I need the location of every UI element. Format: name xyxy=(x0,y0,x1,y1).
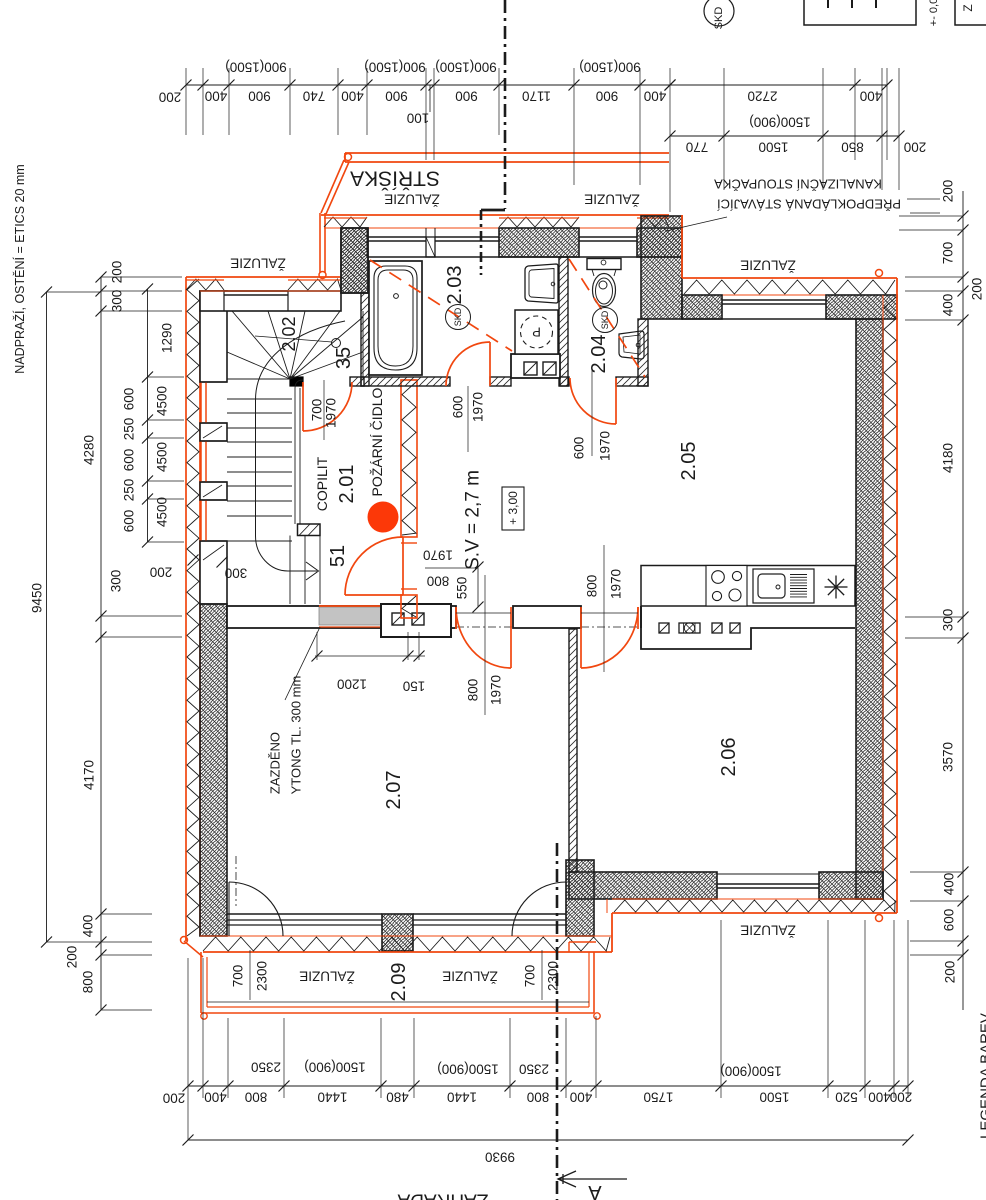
svg-text:2300: 2300 xyxy=(546,961,561,991)
svg-text:2.09: 2.09 xyxy=(388,963,410,1002)
svg-text:A: A xyxy=(588,1181,602,1200)
svg-text:800: 800 xyxy=(427,574,450,589)
svg-text:800: 800 xyxy=(81,971,96,994)
svg-text:900(1500): 900(1500) xyxy=(225,60,287,75)
svg-text:850: 850 xyxy=(841,140,864,155)
svg-text:600: 600 xyxy=(122,388,137,411)
svg-text:1500: 1500 xyxy=(758,140,788,155)
svg-text:400: 400 xyxy=(868,1090,891,1105)
svg-text:200: 200 xyxy=(65,946,80,969)
svg-text:900: 900 xyxy=(248,89,271,104)
svg-text:P: P xyxy=(532,325,541,340)
svg-text:4500: 4500 xyxy=(155,386,170,416)
svg-text:250: 250 xyxy=(122,418,137,441)
svg-text:Z: Z xyxy=(961,4,975,11)
svg-text:1170: 1170 xyxy=(522,89,551,104)
svg-text:800: 800 xyxy=(245,1090,268,1105)
svg-text:400: 400 xyxy=(81,915,96,938)
svg-text:300: 300 xyxy=(941,609,956,632)
svg-text:2.07: 2.07 xyxy=(383,771,405,810)
svg-text:2.05: 2.05 xyxy=(678,442,700,481)
svg-text:POŽÁRNÍ ČIDLO: POŽÁRNÍ ČIDLO xyxy=(369,387,385,496)
svg-text:SKD: SKD xyxy=(453,307,463,326)
svg-text:1290: 1290 xyxy=(160,323,175,353)
svg-text:200: 200 xyxy=(943,961,958,984)
svg-text:1970: 1970 xyxy=(598,431,613,461)
svg-text:1500(900): 1500(900) xyxy=(437,1062,499,1077)
svg-text:200: 200 xyxy=(110,261,125,284)
svg-text:1200: 1200 xyxy=(337,677,367,692)
svg-text:900: 900 xyxy=(455,89,478,104)
svg-text:2300: 2300 xyxy=(255,961,270,991)
svg-text:900: 900 xyxy=(596,89,619,104)
svg-text:400: 400 xyxy=(570,1090,593,1105)
svg-text:ŽALUZIE: ŽALUZIE xyxy=(299,969,355,984)
svg-text:ZAZDĚNO: ZAZDĚNO xyxy=(268,732,283,794)
svg-text:+- 0,0: +- 0,0 xyxy=(928,0,940,26)
svg-text:COPILIT: COPILIT xyxy=(314,456,330,511)
svg-text:2.06: 2.06 xyxy=(718,738,740,777)
svg-text:2.01: 2.01 xyxy=(336,465,358,504)
svg-text:1440: 1440 xyxy=(447,1090,477,1105)
svg-text:1750: 1750 xyxy=(643,1090,673,1105)
svg-text:+ 3,00: + 3,00 xyxy=(506,491,520,525)
svg-text:PŘEDPOKLÁDANÁ STÁVAJÍCÍ: PŘEDPOKLÁDANÁ STÁVAJÍCÍ xyxy=(717,197,901,212)
svg-text:200: 200 xyxy=(163,1091,186,1106)
svg-text:740: 740 xyxy=(303,89,326,104)
svg-text:STŘÍŠKA: STŘÍŠKA xyxy=(350,167,440,190)
svg-text:35: 35 xyxy=(333,347,355,369)
svg-text:900(1500): 900(1500) xyxy=(435,60,497,75)
svg-text:1970: 1970 xyxy=(471,392,486,422)
svg-text:SKD: SKD xyxy=(600,310,610,329)
svg-text:1500(900): 1500(900) xyxy=(720,1064,782,1079)
svg-text:2720: 2720 xyxy=(747,89,777,104)
svg-text:1970: 1970 xyxy=(423,548,453,563)
svg-text:4180: 4180 xyxy=(941,443,956,473)
svg-text:600: 600 xyxy=(572,437,587,460)
svg-text:400: 400 xyxy=(941,294,956,317)
svg-text:400: 400 xyxy=(860,89,883,104)
svg-text:4500: 4500 xyxy=(155,497,170,527)
svg-text:800: 800 xyxy=(585,575,600,598)
svg-text:150: 150 xyxy=(403,679,426,694)
svg-text:3570: 3570 xyxy=(941,742,956,772)
svg-text:520: 520 xyxy=(835,1090,858,1105)
svg-text:800: 800 xyxy=(527,1090,550,1105)
svg-text:4280: 4280 xyxy=(82,435,97,465)
svg-text:LEGENDA BAREV: LEGENDA BAREV xyxy=(978,1013,986,1139)
svg-text:KANALIZAČNÍ STOUPAČKA: KANALIZAČNÍ STOUPAČKA xyxy=(714,177,882,192)
svg-text:400: 400 xyxy=(942,873,957,896)
svg-text:1440: 1440 xyxy=(317,1090,347,1105)
svg-text:1500(900): 1500(900) xyxy=(749,115,811,130)
svg-text:2.04: 2.04 xyxy=(588,335,610,374)
svg-text:ŽALUZIE: ŽALUZIE xyxy=(230,256,286,271)
svg-text:ŽALUZIE: ŽALUZIE xyxy=(384,192,440,207)
svg-text:2350: 2350 xyxy=(251,1060,281,1075)
svg-text:ŽALUZIE: ŽALUZIE xyxy=(740,258,796,273)
svg-text:ŽALUZIE: ŽALUZIE xyxy=(584,192,640,207)
svg-text:200: 200 xyxy=(150,565,173,580)
svg-text:9930: 9930 xyxy=(485,1150,515,1165)
svg-text:ŽALUZIE: ŽALUZIE xyxy=(442,969,498,984)
svg-text:1970: 1970 xyxy=(324,398,339,428)
svg-text:550: 550 xyxy=(455,577,470,600)
svg-text:200: 200 xyxy=(904,140,927,155)
svg-text:1970: 1970 xyxy=(609,569,624,599)
svg-text:700: 700 xyxy=(941,242,956,265)
svg-text:770: 770 xyxy=(686,140,709,155)
svg-text:700: 700 xyxy=(523,965,538,988)
svg-text:400: 400 xyxy=(205,89,228,104)
svg-text:900: 900 xyxy=(385,89,408,104)
svg-text:400: 400 xyxy=(204,1090,227,1105)
svg-text:700: 700 xyxy=(310,399,325,422)
svg-text:SKD: SKD xyxy=(713,7,725,30)
svg-text:9450: 9450 xyxy=(30,583,45,613)
svg-text:200: 200 xyxy=(159,90,182,105)
svg-text:300: 300 xyxy=(225,566,248,581)
svg-text:2.02: 2.02 xyxy=(279,316,299,351)
svg-text:NADPRAŽÍ, OSTĚNÍ = ETICS 20 mm: NADPRAŽÍ, OSTĚNÍ = ETICS 20 mm xyxy=(12,164,27,373)
svg-text:400: 400 xyxy=(644,89,667,104)
svg-text:1500(900): 1500(900) xyxy=(304,1060,366,1075)
svg-text:600: 600 xyxy=(122,510,137,533)
svg-text:4170: 4170 xyxy=(82,760,97,790)
svg-text:200: 200 xyxy=(890,1090,913,1105)
svg-text:200: 200 xyxy=(970,278,985,301)
svg-text:YTONG TL. 300 mm: YTONG TL. 300 mm xyxy=(289,676,304,795)
svg-text:600: 600 xyxy=(942,909,957,932)
svg-text:700: 700 xyxy=(231,965,246,988)
svg-text:4500: 4500 xyxy=(155,442,170,472)
svg-text:1500: 1500 xyxy=(759,1090,789,1105)
svg-text:S.V = 2,7 m: S.V = 2,7 m xyxy=(463,470,484,570)
svg-text:ZAHRADA: ZAHRADA xyxy=(397,1190,488,1200)
svg-text:600: 600 xyxy=(451,396,466,419)
svg-text:300: 300 xyxy=(110,290,125,313)
svg-text:480: 480 xyxy=(386,1090,409,1105)
svg-text:300: 300 xyxy=(109,570,124,593)
svg-text:900(1500): 900(1500) xyxy=(364,60,426,75)
svg-text:200: 200 xyxy=(941,180,956,203)
svg-text:2350: 2350 xyxy=(519,1062,549,1077)
svg-text:400: 400 xyxy=(341,89,364,104)
svg-text:51: 51 xyxy=(327,545,349,567)
svg-text:250: 250 xyxy=(122,479,137,502)
svg-text:800: 800 xyxy=(466,679,481,702)
svg-text:900(1500): 900(1500) xyxy=(579,60,641,75)
svg-text:2.03: 2.03 xyxy=(444,266,466,305)
svg-text:600: 600 xyxy=(122,449,137,472)
svg-text:ŽALUZIE: ŽALUZIE xyxy=(740,923,796,938)
svg-text:1970: 1970 xyxy=(489,675,504,705)
